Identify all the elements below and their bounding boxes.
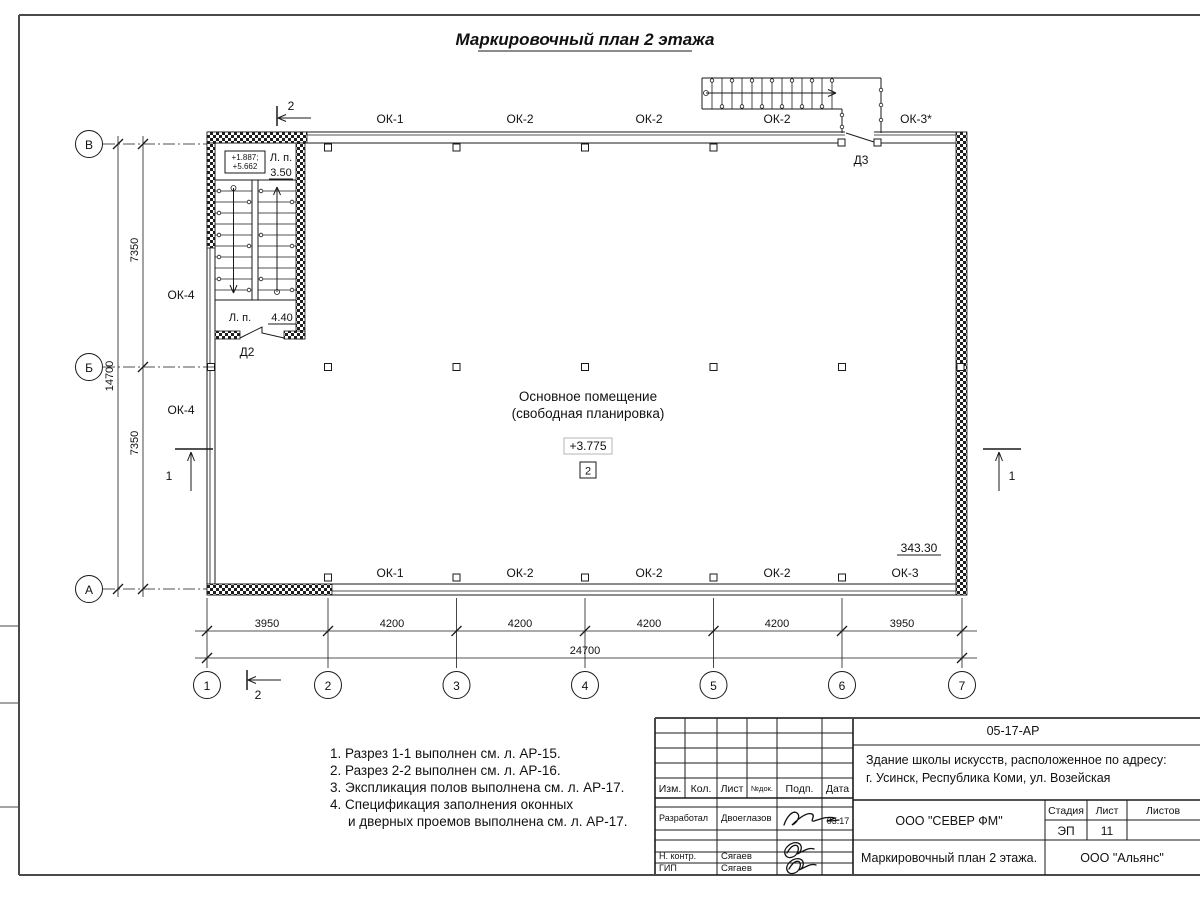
drawing-title: Маркировочный план 2 этажа [456,30,715,51]
tb-project-line2: г. Усинск, Республика Коми, ул. Возейска… [866,771,1110,785]
window-label: ОК-3* [900,112,932,126]
drawing-sheet: Маркировочный план 2 этажа [0,0,1200,900]
tb-project-line1: Здание школы искусств, расположенное по … [866,753,1167,767]
tb-name: Сягаев [721,851,752,862]
room-annotation: Основное помещение (свободная планировка… [512,389,665,478]
tb-org1: ООО "СЕВЕР ФМ" [895,814,1002,828]
window-label: ОК-1 [377,566,404,580]
window-label: ОК-4 [168,288,195,302]
axis-bubble-col: 4 [582,679,589,693]
external-stair-arrow [704,90,837,97]
dim-row: 7350 [129,431,141,455]
tb-col-header: Подп. [786,783,814,795]
dim-col: 4200 [637,618,661,630]
window-label: ОК-2 [764,566,791,580]
tb-col-header: Кол. [691,783,712,795]
dim-col: 4200 [508,618,532,630]
section-label: 2 [288,99,295,113]
window-label: ОК-4 [168,403,195,417]
tb-name: Сягаев [721,863,752,874]
window-label: ОК-2 [636,566,663,580]
axis-bubble-row: В [85,138,93,152]
note-line: и дверных проемов выполнена см. л. АР-17… [348,814,628,829]
tb-sheet-value: 11 [1101,824,1114,838]
axes-left: 7350 7350 14700 В Б А [76,131,216,603]
window-label: ОК-2 [764,112,791,126]
tb-name: Двоеглазов [721,813,772,824]
tb-org2: ООО "Альянс" [1080,851,1164,865]
landing-label-bottom: Л. п. [229,312,251,324]
window-label: ОК-1 [377,112,404,126]
axis-bubble-col: 2 [325,679,332,693]
landing-value-bottom: 4.40 [271,312,292,324]
tb-role: ГИП [659,863,677,873]
tb-doc-code: 05-17-АР [987,724,1040,738]
opening-labels: ОК-1 ОК-2 ОК-2 ОК-2 ОК-3* ОК-1 ОК-2 ОК-2… [168,112,942,580]
axis-bubble-row: Б [85,361,93,375]
room-name-line2: (свободная планировка) [512,406,665,421]
axis-bubble-col: 3 [453,679,460,693]
axes-bottom: 3950 4200 4200 4200 4200 3950 24700 1 2 … [194,598,978,699]
note-line: 3. Экспликация полов выполнена см. л. АР… [330,780,624,795]
tb-role: Н. контр. [659,851,696,861]
landing-label-top: Л. п. [270,152,292,164]
tb-sheet-title: Маркировочный план 2 этажа. [861,851,1037,865]
section-mark-2-top: 2 [277,99,311,126]
note-line: 4. Спецификация заполнения оконных [330,797,573,812]
landing-value-top: 3.50 [270,167,291,179]
dim-row-total: 14700 [104,361,116,392]
axis-bubble-col: 7 [959,679,966,693]
page-title: Маркировочный план 2 этажа [456,30,715,49]
axis-bubble-col: 1 [204,679,211,693]
stair-handrail-posts [217,189,294,292]
dim-col: 4200 [380,618,404,630]
axis-bubble-row: А [85,583,93,597]
extension-lines [207,598,962,668]
notes: 1. Разрез 1-1 выполнен см. л. АР-15. 2. … [330,746,628,829]
stair-treads [215,191,296,290]
tb-sheets-label: Листов [1146,805,1181,817]
tb-stage-label: Стадия [1048,805,1084,817]
axis-bubble-col: 6 [839,679,846,693]
room-elevation: +3.775 [569,439,606,453]
dim-row: 7350 [129,238,141,262]
tb-col-header: №док. [751,784,773,793]
room-name-line1: Основное помещение [519,389,657,404]
stair-elev-line2: +5.662 [233,162,258,171]
section-mark-1-right: 1 [983,449,1021,491]
door-label-d3: Д3 [854,153,869,167]
tb-stage-value: ЭП [1057,824,1074,838]
window-label: ОК-3 [892,566,919,580]
window-label: ОК-2 [507,566,534,580]
tb-col-header: Изм. [659,783,682,795]
dim-col: 4200 [765,618,789,630]
section-label: 1 [1009,469,1016,483]
stair-elev-line1: +1.887; [232,153,259,162]
section-label: 2 [255,688,262,702]
tb-role: Разработал [659,813,708,823]
section-label: 1 [166,469,173,483]
tb-col-header: Дата [826,783,849,795]
tb-sheet-label: Лист [1096,805,1119,817]
stair-block: +1.887; +5.662 Л. п. 3.50 Л. п. 4.40 [215,151,296,324]
title-block: Изм. Кол. Лист №док. Подп. Дата Разработ… [655,718,1200,875]
dim-col: 3950 [255,618,279,630]
dim-col-total: 24700 [570,645,601,657]
section-mark-2-bottom: 2 [247,670,281,702]
area-mark: 343.30 [901,541,938,555]
signatures [784,812,839,873]
dim-col: 3950 [890,618,914,630]
tb-col-header: Лист [721,783,744,795]
columns [208,144,965,581]
window-label: ОК-2 [507,112,534,126]
external-stair [702,78,883,133]
drawing-canvas: Маркировочный план 2 этажа [0,0,1200,900]
external-stair-posts [710,79,883,129]
window-label: ОК-2 [636,112,663,126]
note-line: 1. Разрез 1-1 выполнен см. л. АР-15. [330,746,561,761]
room-number: 2 [585,466,591,478]
note-line: 2. Разрез 2-2 выполнен см. л. АР-16. [330,763,561,778]
section-mark-1-left: 1 [166,449,213,491]
door-label-d2: Д2 [240,345,255,359]
axis-bubble-col: 5 [710,679,717,693]
